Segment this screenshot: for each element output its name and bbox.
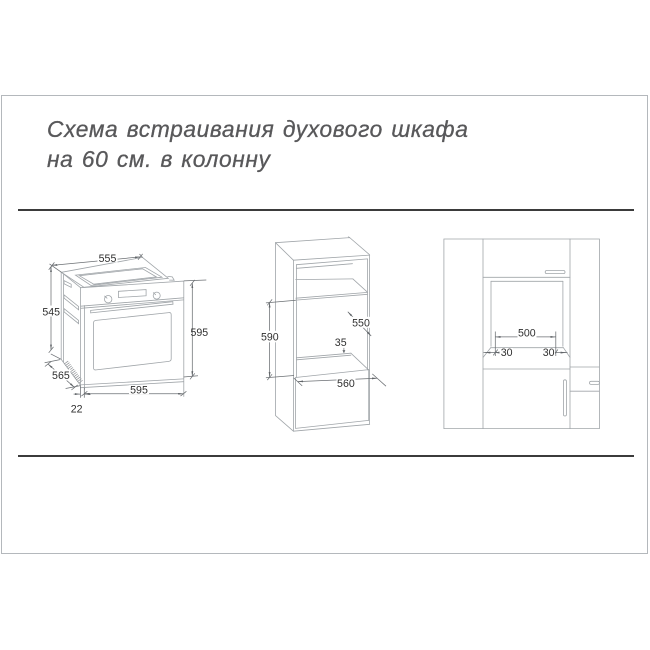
svg-text:500: 500 xyxy=(518,327,536,339)
svg-text:595: 595 xyxy=(190,327,208,339)
svg-text:22: 22 xyxy=(71,403,83,415)
svg-text:545: 545 xyxy=(42,306,60,318)
svg-text:590: 590 xyxy=(261,332,279,344)
svg-text:595: 595 xyxy=(130,384,148,396)
svg-text:550: 550 xyxy=(352,317,370,329)
svg-text:560: 560 xyxy=(337,378,355,390)
svg-text:30: 30 xyxy=(543,347,555,359)
svg-text:30: 30 xyxy=(501,347,513,359)
svg-text:555: 555 xyxy=(99,253,117,265)
svg-text:565: 565 xyxy=(52,370,70,382)
svg-text:35: 35 xyxy=(335,337,347,349)
